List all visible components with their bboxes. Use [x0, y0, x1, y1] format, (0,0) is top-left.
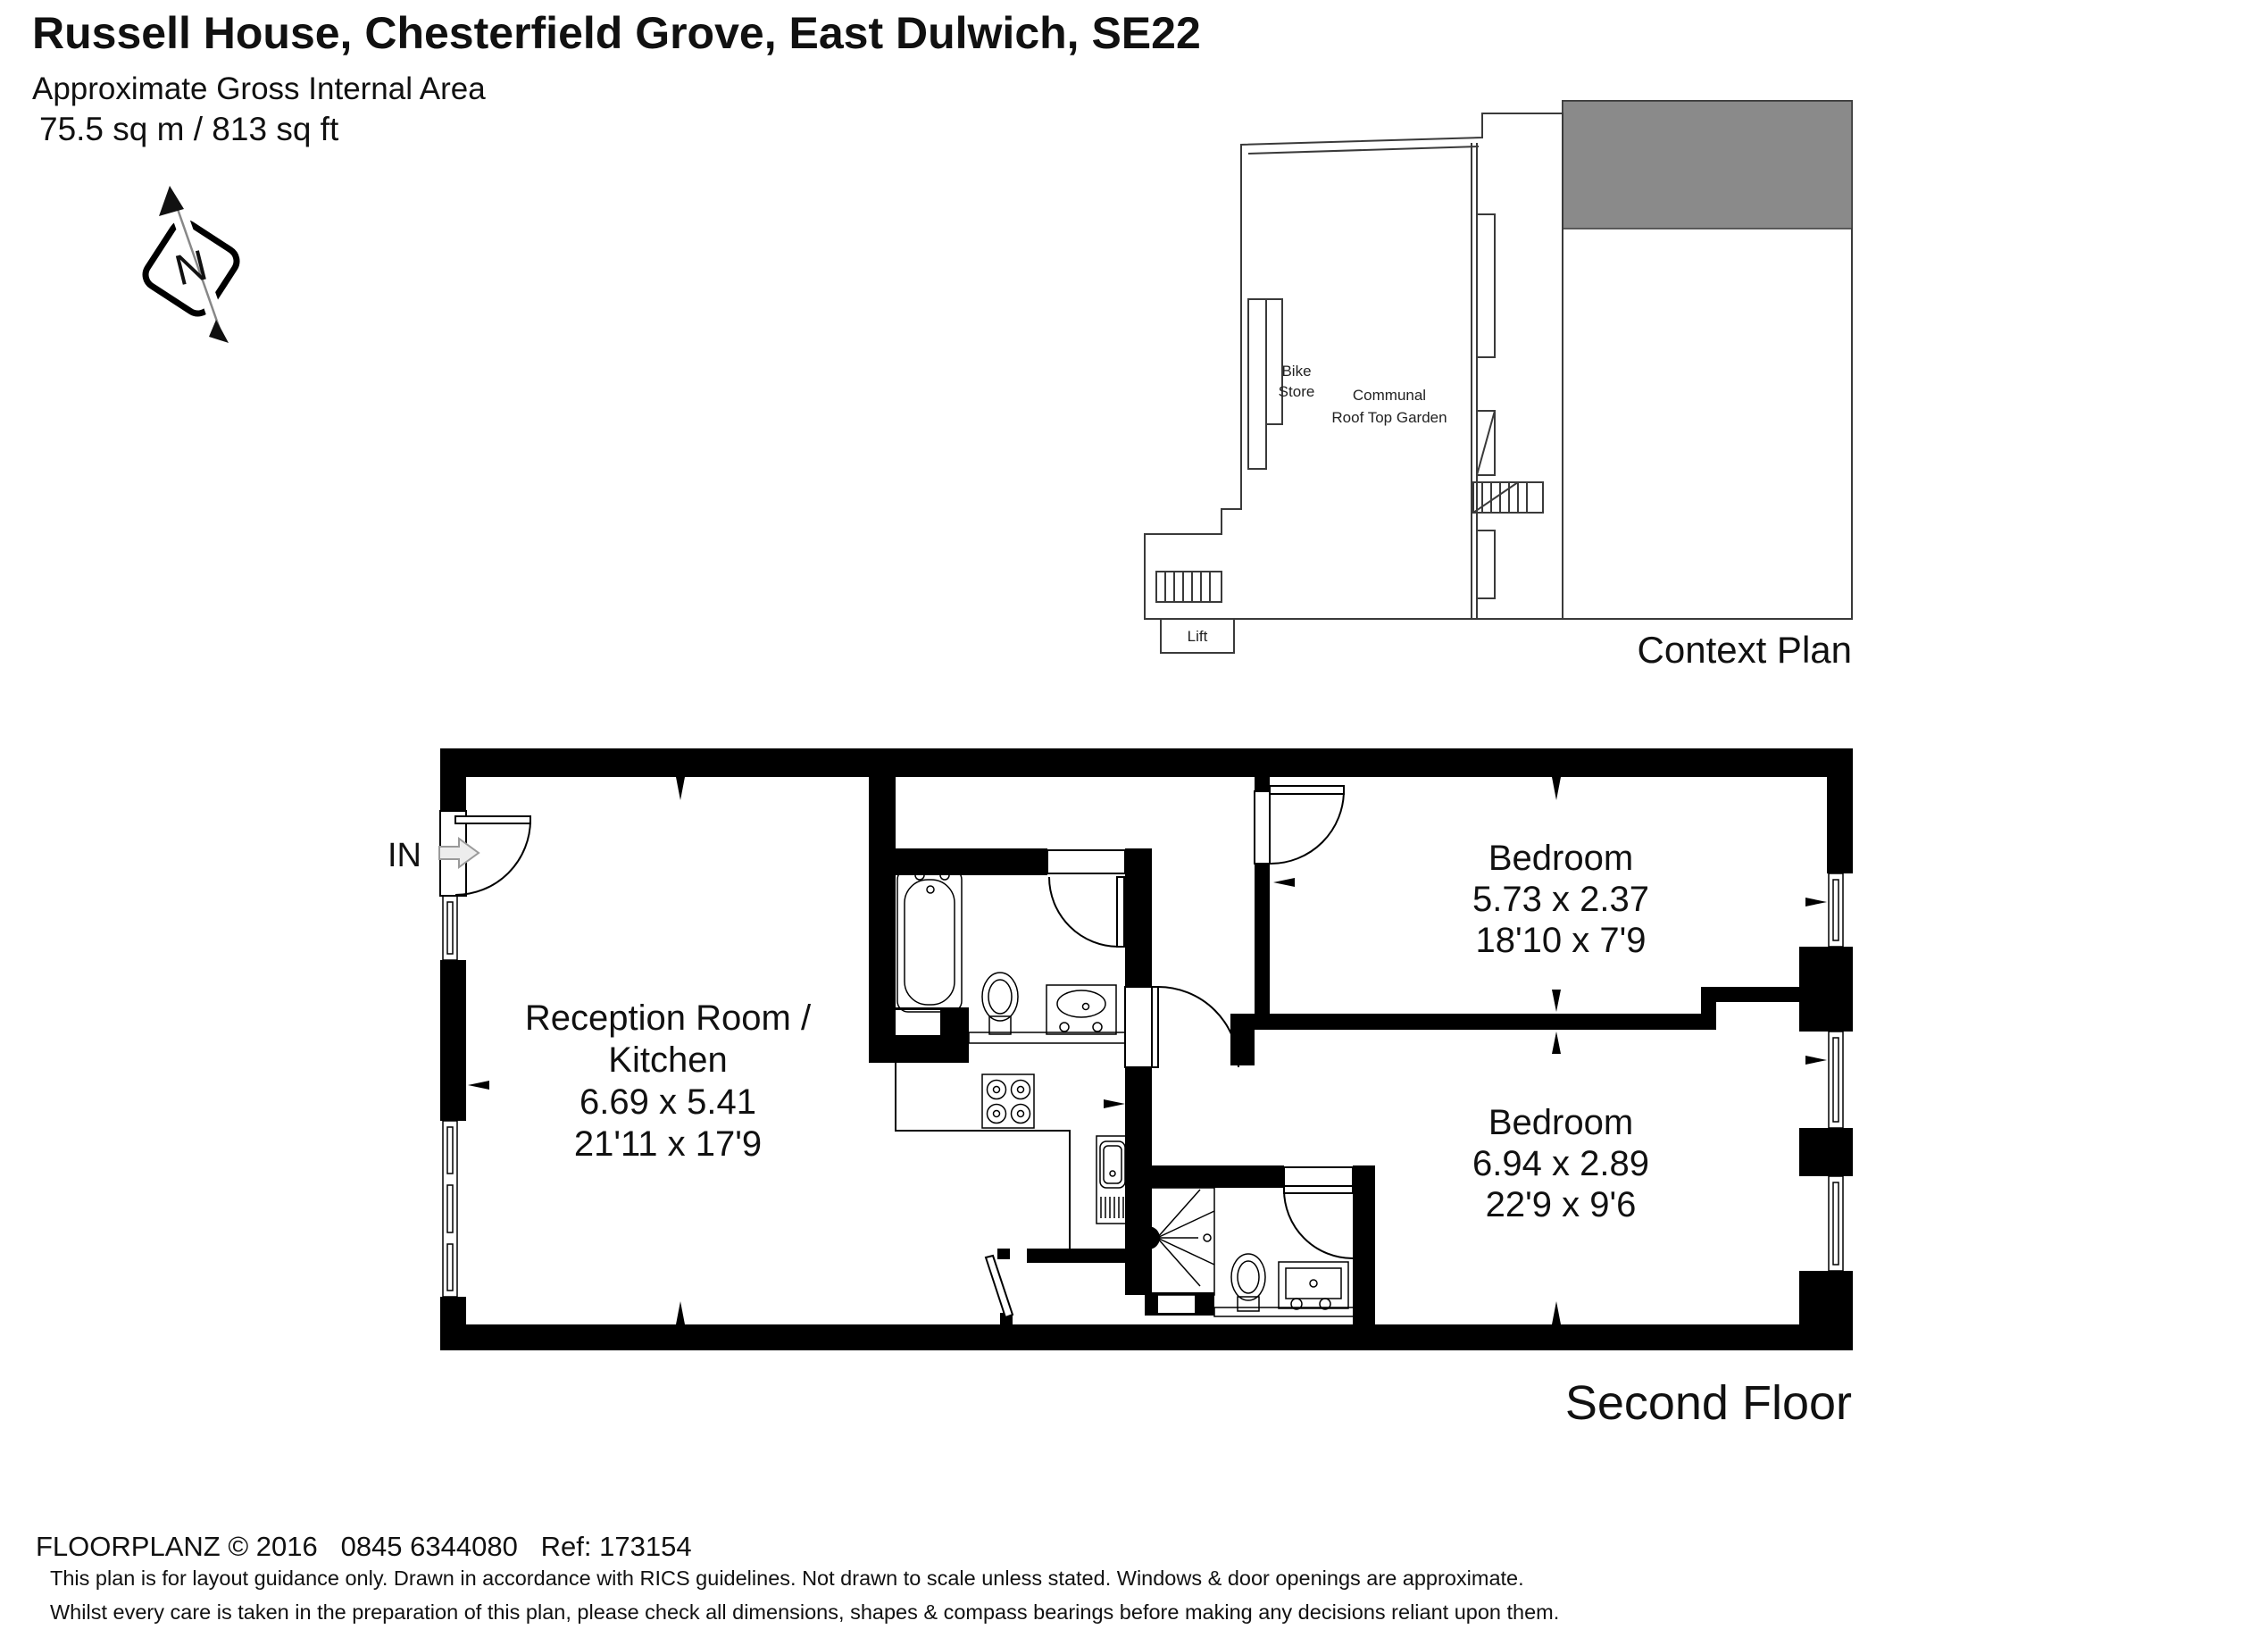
window-left-1	[443, 896, 457, 960]
bike-store-label-line1: Bike	[1281, 363, 1311, 380]
bedroom2-dims-imperial: 22'9 x 9'6	[1486, 1185, 1637, 1224]
wall-left-top	[440, 748, 466, 811]
wall-kitchen-bottom	[1027, 1249, 1130, 1263]
wall-left-mid	[440, 960, 466, 1121]
context-plan: Bike Store Communal Roof Top Garden Lift	[1145, 101, 1852, 653]
bathtub-icon	[897, 869, 962, 1012]
bedroom1-opening	[1255, 791, 1270, 864]
toilet2-icon	[1231, 1254, 1265, 1311]
bathroom-door-arc	[1049, 877, 1119, 947]
bike-store-label-line2: Store	[1279, 383, 1315, 400]
bedroom1-dims-metric: 5.73 x 2.37	[1472, 880, 1649, 919]
bedroom1-dims-imperial: 18'10 x 7'9	[1476, 921, 1647, 960]
context-lift: Lift	[1161, 619, 1234, 653]
garden-label-line2: Roof Top Garden	[1331, 409, 1447, 426]
entrance-in-label: IN	[388, 837, 421, 874]
bathroom-door-leaf	[1117, 877, 1124, 947]
shower-room-opening	[1284, 1167, 1353, 1186]
tick-bottom-1	[676, 1301, 685, 1324]
toilet-icon	[982, 973, 1018, 1034]
wall-bottom	[440, 1324, 1853, 1350]
wall-bathroom-right	[1125, 848, 1152, 987]
tick-divider-top	[1552, 990, 1561, 1012]
wall-right-pier-2	[1799, 1128, 1853, 1176]
wall-bedroom1-left	[1255, 864, 1270, 1014]
basin-icon	[1046, 985, 1116, 1034]
kitchen-fittings	[896, 1063, 1129, 1249]
kitchen-sink-icon	[1096, 1136, 1129, 1224]
window-bedroom1	[1829, 873, 1843, 947]
wall-right-bottom	[1799, 1271, 1853, 1326]
hallway-door-arc	[1158, 987, 1238, 1067]
tick-bedroom1-wall	[1273, 878, 1295, 887]
wall-bedroom-divider-right	[1716, 987, 1801, 1002]
lift-label: Lift	[1188, 628, 1208, 645]
wall-shower-right	[1353, 1165, 1375, 1324]
hallway-door-leaf	[1152, 987, 1158, 1067]
bathroom-opening	[1047, 850, 1125, 873]
shower-stub-notch	[1158, 1295, 1195, 1313]
hob-icon	[982, 1074, 1034, 1128]
hallway-opening	[1125, 987, 1152, 1067]
tick-left-wall	[468, 1081, 489, 1090]
bedroom1-label: Bedroom	[1488, 839, 1633, 878]
wall-bedroom-divider	[1255, 1014, 1701, 1030]
bathroom-corner-notch	[896, 1010, 940, 1035]
bedroom2-label: Bedroom	[1488, 1103, 1633, 1142]
wall-shower-top-left	[1125, 1165, 1284, 1188]
bedroom2-dims-metric: 6.94 x 2.89	[1472, 1144, 1649, 1183]
shower-door-leaf	[1284, 1186, 1353, 1193]
tick-bottom-2	[1552, 1301, 1561, 1324]
wall-right-pier-1	[1799, 947, 1853, 1032]
wall-bedroom1-stub	[1255, 775, 1270, 791]
compass-icon: N	[140, 186, 241, 343]
tick-top-1	[676, 777, 685, 800]
tick-right-wall-1	[1805, 898, 1827, 906]
reception-dims-metric: 6.69 x 5.41	[580, 1082, 756, 1122]
window-bedroom2-lower	[1829, 1176, 1843, 1271]
shower-door-arc	[1284, 1190, 1353, 1258]
reception-dims-imperial: 21'11 x 17'9	[574, 1124, 762, 1164]
room-labels: Reception Room / Kitchen 6.69 x 5.41 21'…	[525, 839, 1649, 1224]
window-bedroom2-upper	[1829, 1032, 1843, 1128]
tick-kitchen-wall	[1104, 1099, 1125, 1108]
kitchen-angled-door-leaf	[986, 1256, 1013, 1317]
wall-right-top	[1827, 748, 1853, 873]
wall-left-bottom	[440, 1297, 466, 1350]
door-angled-jamb-top	[997, 1249, 1010, 1259]
wall-top	[440, 748, 1853, 777]
basin2-icon	[1279, 1262, 1348, 1309]
reception-label-line1: Reception Room /	[525, 998, 812, 1038]
reception-label-line2: Kitchen	[608, 1040, 727, 1080]
wall-bedroom-divider-jog	[1701, 987, 1716, 1030]
garden-label-line1: Communal	[1353, 387, 1426, 404]
bedroom1-door-arc	[1271, 790, 1344, 864]
tick-divider-bottom	[1552, 1032, 1561, 1054]
tick-top-2	[1552, 777, 1561, 800]
bedroom1-door-leaf	[1270, 786, 1344, 794]
tick-right-wall-2	[1805, 1056, 1827, 1065]
window-left-2	[443, 1121, 457, 1297]
floorplan-canvas: N Bike Store Communal	[0, 0, 2268, 1629]
context-building-outline	[1145, 113, 1563, 619]
context-highlighted-flat	[1563, 101, 1852, 229]
shower-icon	[1143, 1190, 1214, 1286]
entrance-door-leaf	[455, 816, 530, 823]
